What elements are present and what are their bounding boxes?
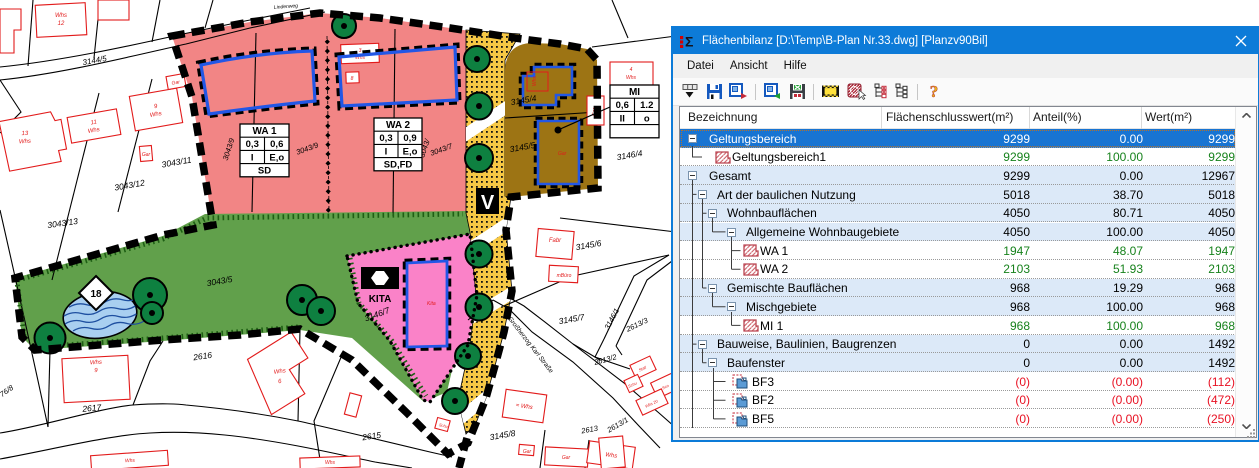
svg-text:Whs: Whs <box>626 75 637 81</box>
svg-text:SD,FD: SD,FD <box>384 160 413 171</box>
svg-text:8: 8 <box>351 76 354 82</box>
svg-text:E‚o: E‚o <box>269 152 284 163</box>
svg-text:KITA: KITA <box>369 294 392 305</box>
svg-text:Gar: Gar <box>523 449 532 455</box>
svg-text:0,6: 0,6 <box>616 100 629 111</box>
svg-text:?: ? <box>929 83 938 100</box>
svg-text:MI: MI <box>629 87 640 98</box>
svg-text:Whs: Whs <box>125 458 136 465</box>
svg-text:Fabr: Fabr <box>549 238 562 244</box>
svg-text:WA 1: WA 1 <box>252 126 277 137</box>
svg-text:13: 13 <box>21 131 29 137</box>
svg-text:E‚o: E‚o <box>403 146 418 157</box>
svg-text:1.2: 1.2 <box>640 100 653 111</box>
svg-text:Whs: Whs <box>532 76 538 87</box>
svg-text:WA 2: WA 2 <box>386 120 411 131</box>
svg-text:Gar: Gar <box>142 152 151 158</box>
svg-text:0,3: 0,3 <box>379 133 392 144</box>
svg-text:Whs: Whs <box>325 460 336 466</box>
svg-text:Whs: Whs <box>90 360 102 367</box>
svg-text:0,3: 0,3 <box>246 139 259 150</box>
svg-text:Whs: Whs <box>19 139 31 146</box>
svg-text:o: o <box>644 113 650 124</box>
svg-text:2617: 2617 <box>81 402 102 414</box>
svg-text:V: V <box>481 192 495 214</box>
svg-text:SD: SD <box>258 166 271 177</box>
svg-text:12: 12 <box>58 21 65 27</box>
svg-text:Gar: Gar <box>562 455 571 461</box>
svg-text:18: 18 <box>90 289 102 300</box>
svg-text:Σ: Σ <box>685 34 693 49</box>
svg-text:3: 3 <box>359 48 362 54</box>
svg-text:mBüro: mBüro <box>557 273 572 279</box>
svg-text:4: 4 <box>630 67 633 73</box>
svg-text:Whs: Whs <box>55 13 67 19</box>
svg-text:I: I <box>251 152 254 163</box>
svg-text:0,6: 0,6 <box>270 139 283 150</box>
svg-text:Gar: Gar <box>558 151 567 157</box>
svg-text:Kita: Kita <box>427 301 436 307</box>
svg-text:0,9: 0,9 <box>403 133 416 144</box>
svg-text:II: II <box>620 113 625 124</box>
svg-text:I: I <box>385 146 388 157</box>
svg-text:11: 11 <box>90 120 97 127</box>
